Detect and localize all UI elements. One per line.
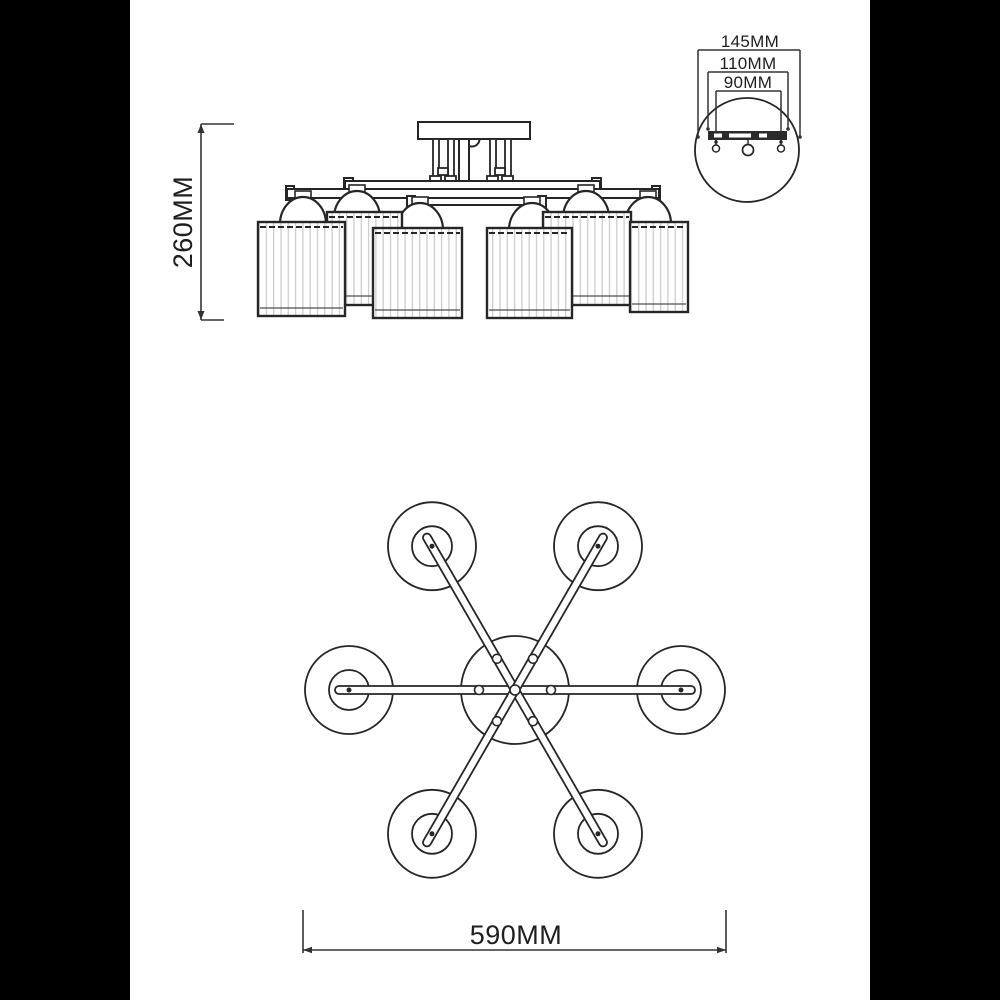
mounting-hole-center <box>743 145 754 156</box>
top-view: 590MM <box>303 502 726 953</box>
mounting-hole-left <box>713 145 720 152</box>
mounting-plate <box>708 131 787 156</box>
arm-bar-rear <box>345 181 600 189</box>
arrow-right-icon <box>717 947 726 953</box>
left-letterbox <box>0 0 130 1000</box>
shade-6 <box>630 222 688 312</box>
height-dimension <box>198 124 235 320</box>
height-dimension-label: 260MM <box>168 176 198 269</box>
canopy-posts <box>430 139 513 181</box>
arm-bar-front <box>413 198 539 205</box>
arrow-up-icon <box>198 124 205 133</box>
detail-middle-label: 110MM <box>720 54 777 73</box>
shade-4 <box>487 228 572 318</box>
lamp-shades <box>258 212 688 318</box>
ceiling-canopy <box>418 122 530 139</box>
width-dimension-label: 590MM <box>470 920 563 950</box>
side-view: 260MM <box>168 122 688 320</box>
center-hole <box>510 685 520 695</box>
technical-drawing: 260MM <box>0 0 1000 1000</box>
detail-view: 145MM 110MM 90MM <box>695 32 802 202</box>
arrow-left-icon <box>303 947 312 953</box>
detail-inner-label: 90MM <box>724 73 772 92</box>
plate-slot <box>714 134 722 138</box>
plate-slot <box>729 134 751 138</box>
shade-3 <box>373 228 462 318</box>
plate-slot <box>759 134 767 138</box>
right-letterbox <box>870 0 1000 1000</box>
drawing-canvas: 260MM <box>0 0 1000 1000</box>
shade-1 <box>258 222 345 316</box>
arrow-down-icon <box>198 311 205 320</box>
detail-outer-label: 145MM <box>721 32 779 51</box>
mounting-hole-right <box>778 145 785 152</box>
